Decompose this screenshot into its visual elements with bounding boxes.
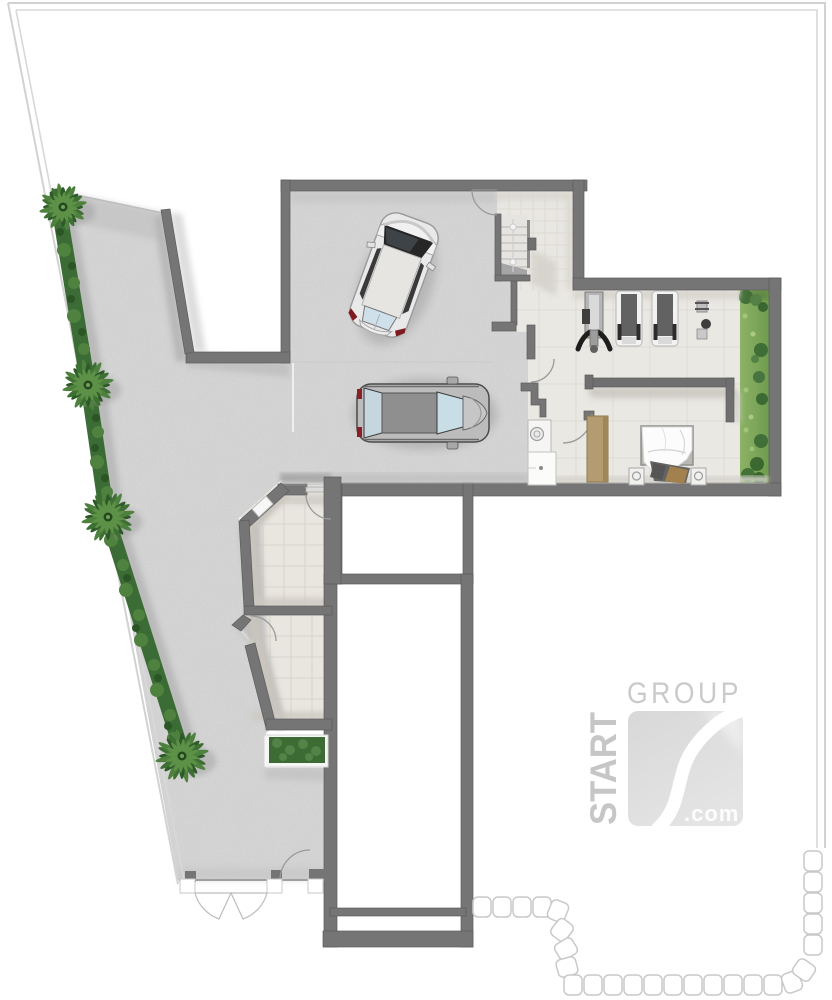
svg-text:START: START (583, 712, 624, 825)
svg-text:GROUP: GROUP (627, 677, 742, 710)
svg-text:.com: .com (684, 801, 739, 826)
